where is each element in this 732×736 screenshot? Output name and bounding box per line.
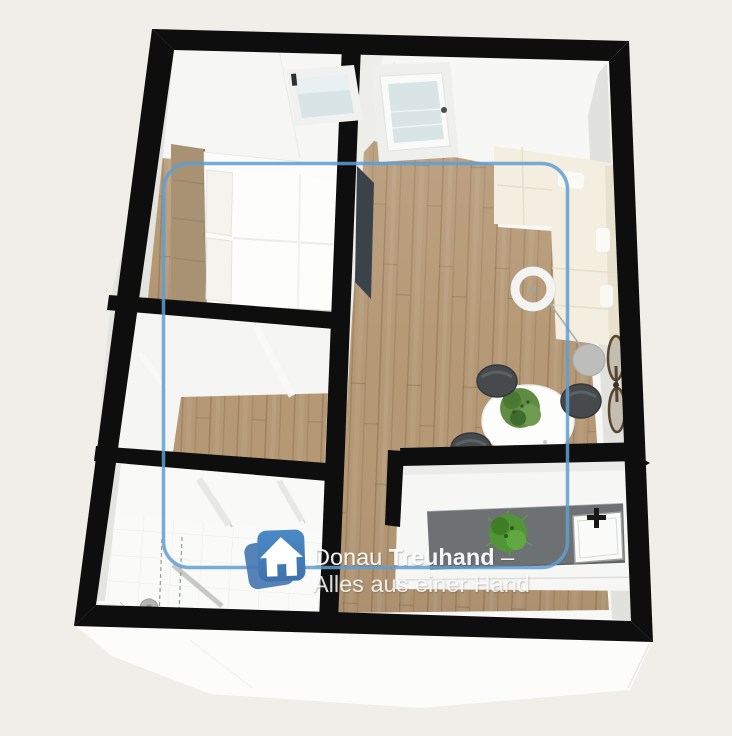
bed-pillow	[206, 238, 232, 303]
door-handle	[441, 107, 447, 113]
floorplan-viewport[interactable]: Donau Treuhand – Alles aus einer Hand	[0, 0, 732, 736]
house-icon	[257, 529, 306, 582]
entry-door	[371, 62, 459, 162]
double-bed	[171, 144, 342, 312]
bed-pillow	[206, 170, 233, 236]
arc-lamp-base	[573, 344, 605, 376]
tv-panel	[355, 166, 374, 299]
watermark-tagline-text: Alles aus einer Hand	[313, 571, 530, 597]
room-hallway	[97, 310, 345, 467]
bedroom-window	[286, 65, 363, 126]
watermark-brand-text: Donau Treuhand –	[313, 544, 515, 570]
dining-chair	[477, 365, 517, 397]
sofa-pillow	[600, 285, 613, 307]
sofa-pillow	[596, 228, 610, 252]
